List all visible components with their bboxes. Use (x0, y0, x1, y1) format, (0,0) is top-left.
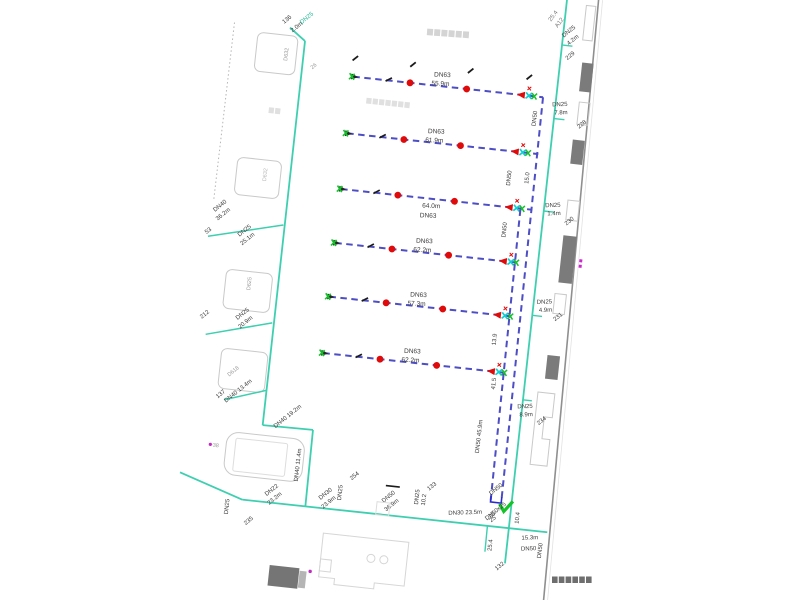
svg-text:DN63: DN63 (434, 71, 451, 79)
svg-text:DN25: DN25 (545, 203, 561, 209)
svg-text:DN63: DN63 (420, 212, 437, 220)
svg-text:8.9m: 8.9m (519, 412, 533, 418)
svg-text:DN30 23.5m: DN30 23.5m (448, 510, 482, 517)
svg-text:7.8m: 7.8m (554, 110, 568, 116)
svg-text:DN63: DN63 (404, 348, 421, 356)
svg-text:64.0m: 64.0m (422, 202, 440, 210)
svg-text:61.9m: 61.9m (425, 137, 443, 145)
svg-text:DN25: DN25 (517, 404, 533, 410)
svg-text:DN63: DN63 (428, 128, 445, 136)
svg-text:DN63: DN63 (416, 238, 433, 246)
svg-text:1.4m: 1.4m (547, 211, 561, 217)
svg-text:55.9m: 55.9m (431, 80, 449, 88)
svg-text:DN25: DN25 (537, 299, 553, 305)
svg-text:62.2m: 62.2m (401, 357, 419, 365)
svg-text:62.2m: 62.2m (413, 246, 431, 254)
svg-text:DN25: DN25 (552, 102, 568, 108)
svg-text:DN50: DN50 (521, 546, 537, 552)
svg-text:57.3m: 57.3m (407, 300, 425, 308)
svg-text:4.9m: 4.9m (539, 308, 553, 314)
svg-text:DN63: DN63 (410, 291, 427, 299)
svg-text:15.3m: 15.3m (521, 535, 538, 542)
